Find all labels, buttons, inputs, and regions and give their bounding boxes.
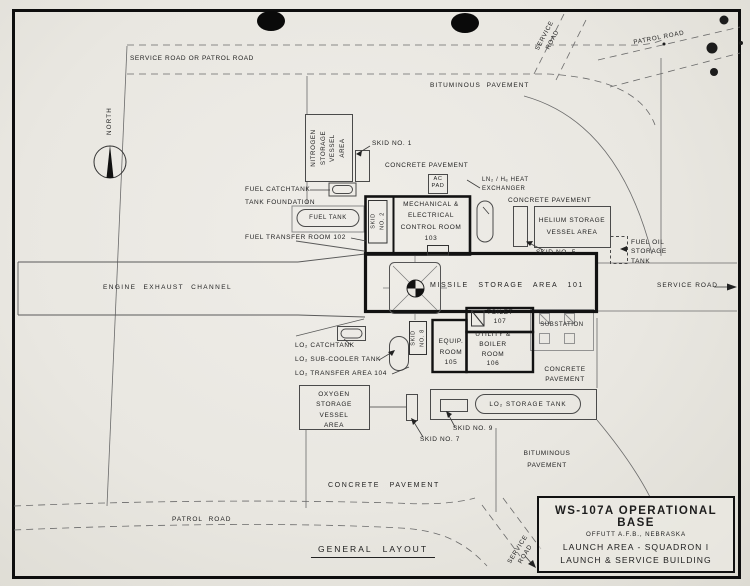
road-label-top: SERVICE ROAD OR PATROL ROAD [130,54,254,64]
heat-exchanger-label: LN₂ / Hₑ HEAT EXCHANGER [482,176,529,195]
substation-label: SUBSTATION [540,321,583,330]
pavement-concrete-north: CONCRETE PAVEMENT [385,161,468,171]
skid-5-label: SKID NO. 5 [536,248,576,258]
ac-pad-label: AC PAD [432,176,445,191]
skid-1-label: SKID NO. 1 [372,139,412,149]
road-label-service-east: SERVICE ROAD [657,281,718,291]
fuel-oil-tank-label: FUEL OIL STORAGE TANK [631,238,667,266]
nitrogen-area-label: NITROGEN STORAGE VESSEL AREA [309,129,347,166]
title-line-3: LAUNCH AREA - SQUADRON I [563,542,709,552]
title-line-2: OFFUTT A.F.B., NEBRASKA [586,531,686,538]
helium-area-label: HELIUM STORAGE VESSEL AREA [539,215,605,240]
pavement-concrete-south: CONCRETE PAVEMENT [328,481,440,492]
skid-9-label: SKID NO. 9 [453,424,493,434]
fuel-transfer-label: FUEL TRANSFER ROOM 102 [245,233,346,243]
lo2-catchtank-label: LO₂ CATCHTANK [295,341,355,351]
title-line-1: WS-107A OPERATIONAL BASE [539,505,733,529]
pavement-bituminous-top: BITUMINOUS PAVEMENT [430,81,529,91]
skid-8-label: SKID NO. 8 [409,329,426,347]
drawing-caption: GENERAL LAYOUT [311,544,435,558]
fuel-catchtank-label: FUEL CATCHTANK [245,185,310,195]
skid-2-label: SKID NO. 2 [369,212,386,230]
title-line-4: LAUNCH & SERVICE BUILDING [560,555,711,565]
toilet-label: TOILET 107 [487,309,513,327]
oxygen-area-label: OXYGEN STORAGE VESSEL AREA [316,390,352,432]
exhaust-channel-label: ENGINE EXHAUST CHANNEL [103,283,232,293]
lo2-transfer-label: LO₂ TRANSFER AREA 104 [295,369,387,379]
tank-foundation-label: TANK FOUNDATION [245,198,315,208]
lo2-subcooler-label: LO₂ SUB-COOLER TANK [295,355,381,365]
north-arrow [94,145,126,178]
punch-holes [257,11,479,33]
pavement-concrete-se: CONCRETE PAVEMENT [544,365,585,386]
north-label: NORTH [105,107,115,135]
title-block: WS-107A OPERATIONAL BASE OFFUTT A.F.B., … [537,496,735,573]
utility-boiler-label: UTILITY & BOILER ROOM 106 [475,330,511,369]
pavement-bituminous-se: BITUMINOUS PAVEMENT [524,448,571,473]
pavement-concrete-ne: CONCRETE PAVEMENT [508,196,591,206]
fuel-tank-label: FUEL TANK [309,214,347,223]
equip-room-label: EQUIP. ROOM 105 [439,337,464,369]
ink-blots [663,16,744,77]
mech-control-room-label: MECHANICAL & ELECTRICAL CONTROL ROOM 103 [401,199,462,245]
road-label-patrol-bottom: PATROL ROAD [172,515,231,525]
lo2-storage-tank-label: LO₂ STORAGE TANK [489,400,566,410]
skid-7-label: SKID NO. 7 [420,435,460,445]
scanned-site-plan: SERVICE ROAD OR PATROL ROAD SERVICE ROAD… [0,0,750,586]
missile-storage-label: MISSILE STORAGE AREA 101 [430,281,584,292]
